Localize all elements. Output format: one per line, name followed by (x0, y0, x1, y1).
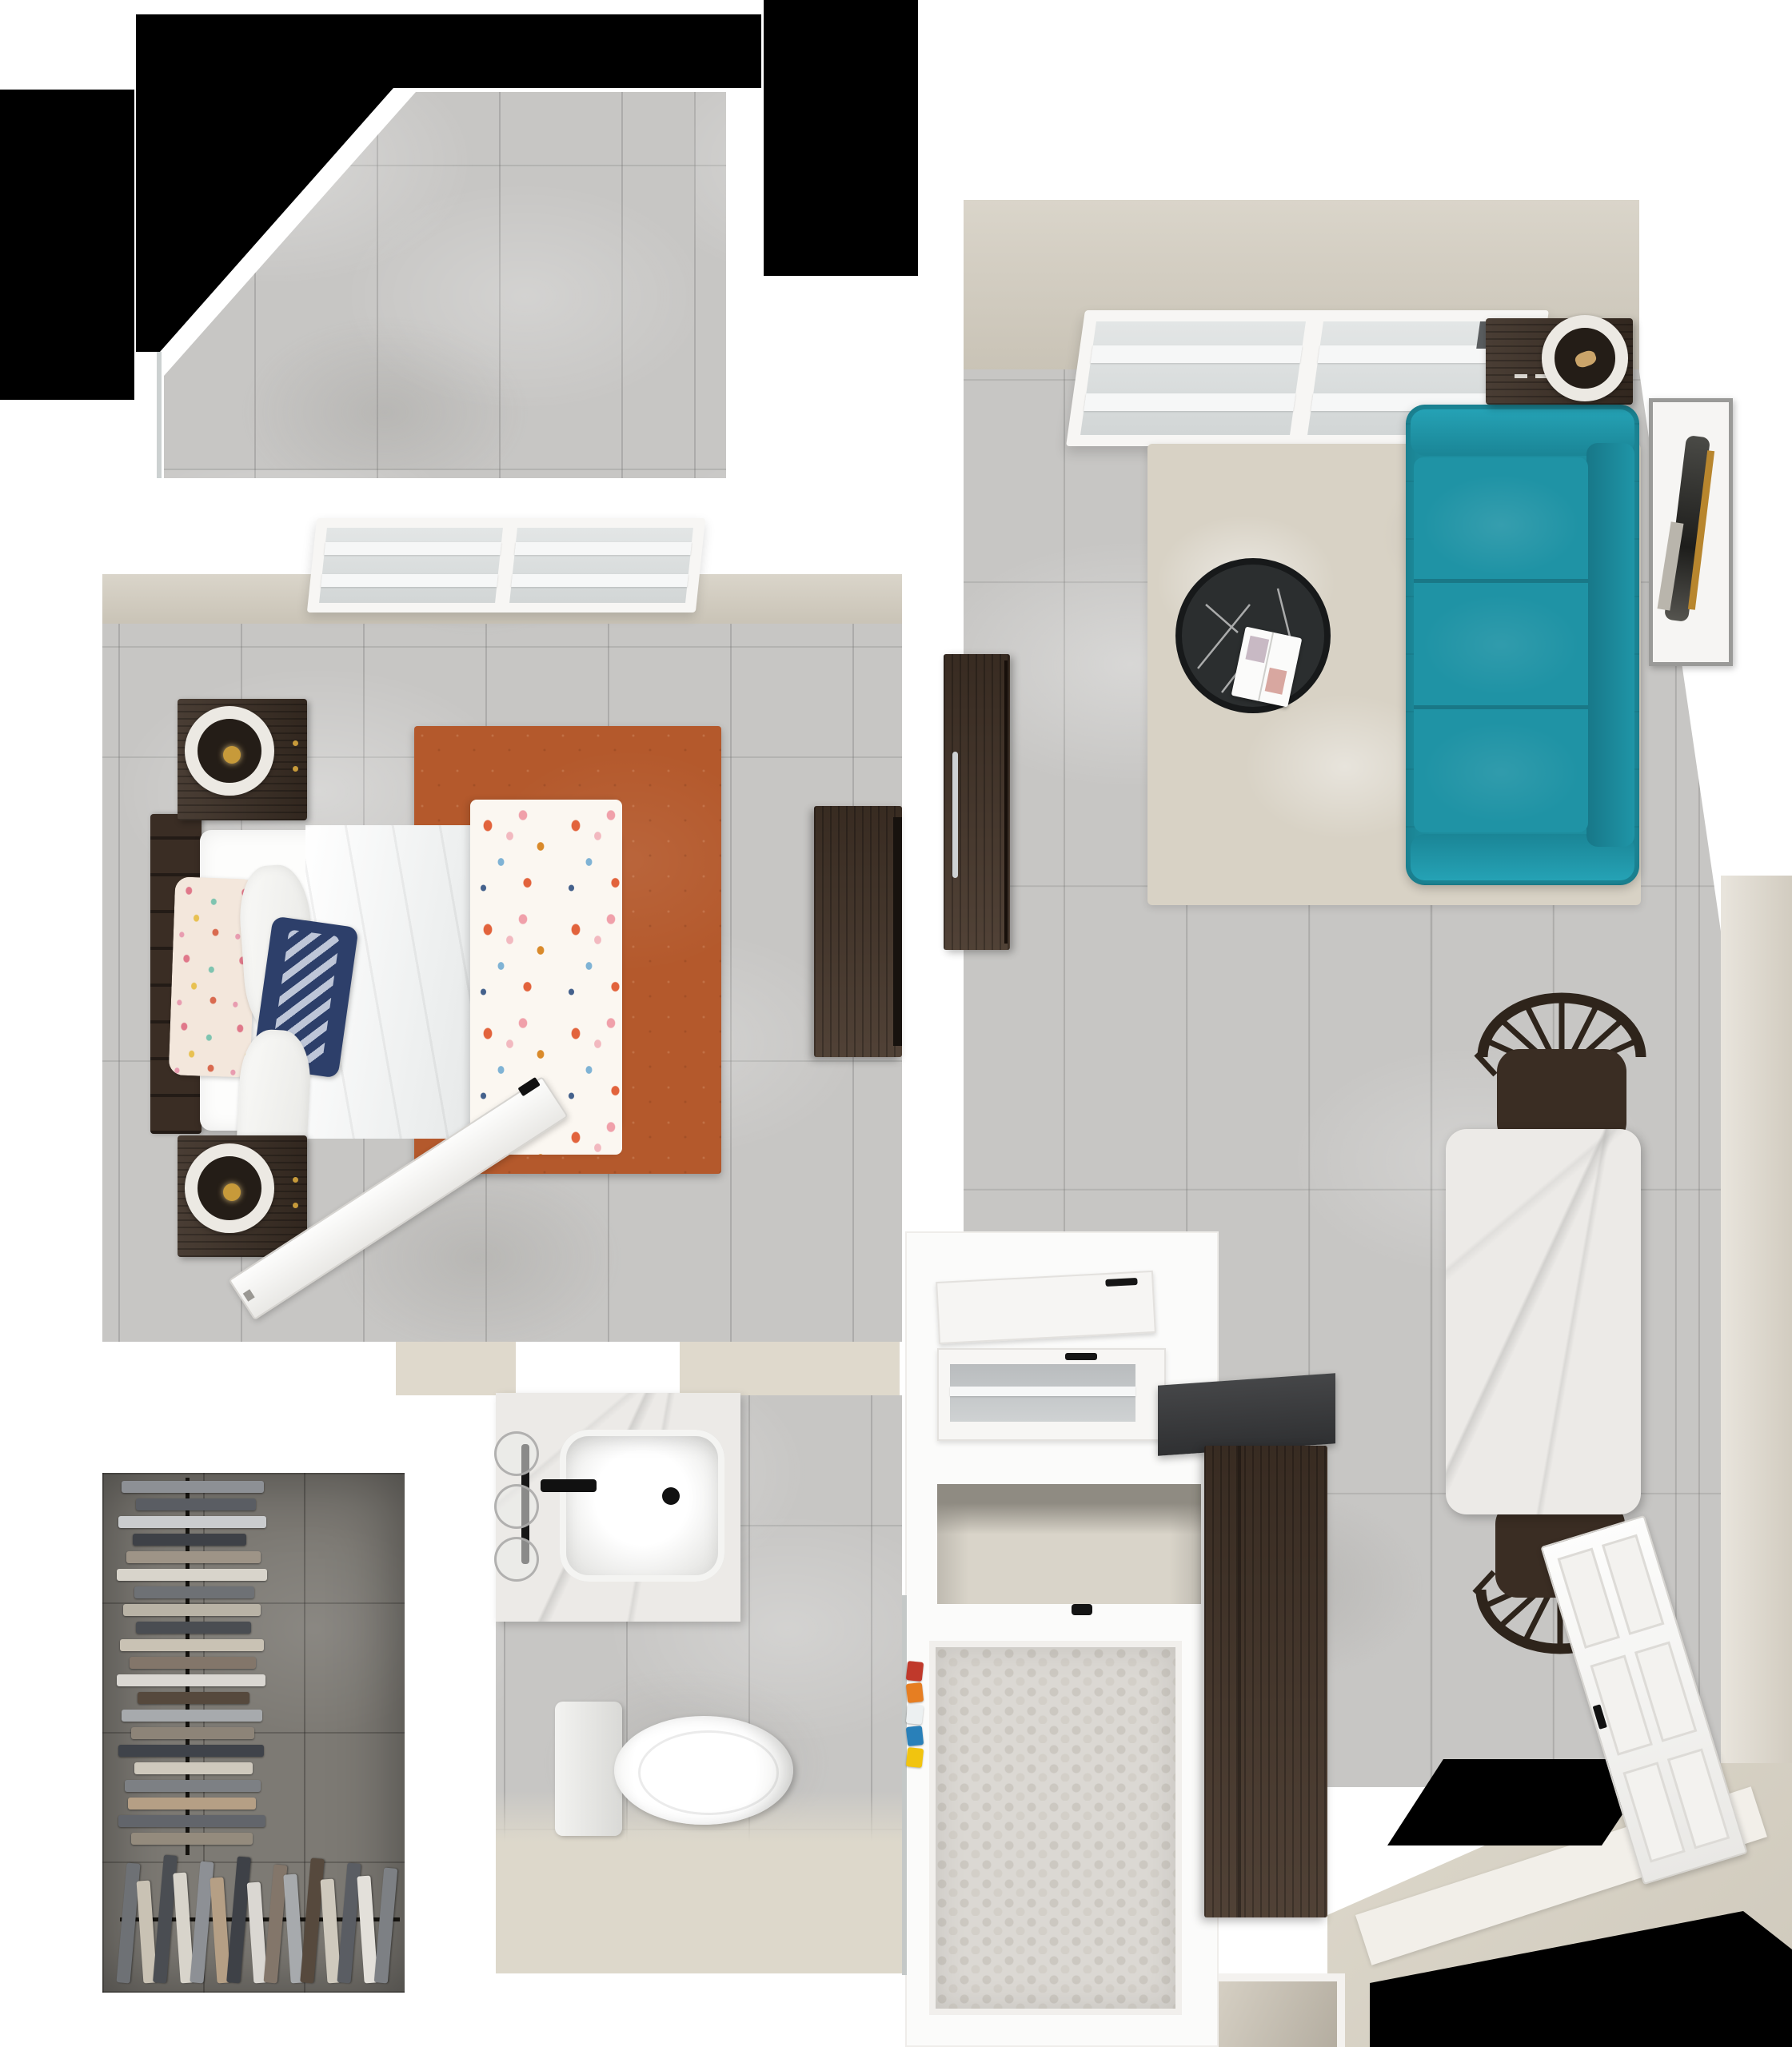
clothes-item (122, 1481, 264, 1493)
bedroom-dresser-edge (893, 817, 902, 1046)
sink-drain (662, 1487, 680, 1505)
clothes-item (117, 1569, 267, 1581)
counter-open-shelf (937, 1484, 1201, 1604)
bedroom-dresser (814, 806, 902, 1057)
toiletry-bottle (906, 1661, 924, 1682)
drawer-knob (293, 740, 298, 746)
doorway-gap-bathroom (396, 1342, 516, 1395)
doorway-gap-living (680, 1342, 900, 1395)
toiletry-bottle (906, 1682, 924, 1703)
sofa-seam (1414, 705, 1588, 709)
skylight-pane-left (319, 528, 503, 603)
clothes-item (125, 1780, 261, 1792)
skylight-pane-right (509, 528, 693, 603)
clothes-item (374, 1868, 397, 1984)
sofa-backrest (1586, 443, 1634, 847)
shower-glass-line (902, 1595, 907, 1975)
lid-handle (1105, 1278, 1137, 1287)
door-hinge (243, 1289, 255, 1302)
clothes-item (133, 1534, 246, 1546)
void-between-units (764, 0, 918, 276)
patio-glass-rail (157, 352, 162, 478)
table-lamp-bottom (185, 1143, 274, 1233)
closet-rack-bottom-items (122, 1853, 401, 1983)
void-left-strip (0, 90, 134, 400)
counter-knob (1072, 1604, 1092, 1615)
toilet-tank (555, 1702, 622, 1836)
abstract-wall-art (1649, 398, 1733, 666)
clothes-item (138, 1692, 249, 1704)
glass-jar (494, 1484, 539, 1529)
drawer-knob (293, 766, 298, 772)
glass-jar (494, 1537, 539, 1582)
closet-rack-vertical-items (112, 1481, 272, 1855)
table-lamp-top (185, 706, 274, 796)
teal-sofa (1406, 405, 1639, 885)
bedroom-skylight (307, 518, 705, 613)
vanity-sink (560, 1430, 724, 1582)
floor-plan-stage (0, 0, 1792, 2047)
lamp-inner-object (1574, 349, 1598, 369)
magazine-page-art (1265, 668, 1287, 695)
clothes-item (130, 1657, 256, 1669)
clothes-item (120, 1639, 264, 1651)
dining-chair-top (1471, 980, 1652, 1145)
clothes-item (300, 1858, 325, 1984)
cabinet-handle (952, 752, 958, 878)
lamp-bulb-gold (223, 746, 241, 764)
clothes-item (136, 1622, 251, 1634)
drawer-knob (293, 1177, 298, 1183)
pantry-counter-top (1158, 1373, 1335, 1456)
sofa-seam (1414, 579, 1588, 583)
clothes-item (118, 1815, 265, 1827)
shower-floor (929, 1641, 1182, 2015)
clothes-item (118, 1516, 266, 1528)
clothes-item (117, 1674, 265, 1686)
toiletry-bottle (906, 1747, 924, 1768)
dining-table (1446, 1129, 1641, 1514)
sofa-seat (1414, 457, 1588, 832)
toilet-seat-line (638, 1730, 779, 1815)
clothes-item (131, 1727, 254, 1739)
living-tall-cabinet (944, 654, 1010, 950)
counter-lid-upper (936, 1271, 1156, 1344)
entry-wall-niche (1209, 1973, 1345, 2047)
drawer-handle (1515, 374, 1527, 378)
clothes-item (131, 1833, 253, 1845)
clothes-item (134, 1586, 254, 1598)
toiletry-bottle (906, 1704, 924, 1725)
clothes-item (136, 1498, 256, 1510)
clothes-item (126, 1551, 261, 1563)
lid-glass-panel (950, 1364, 1135, 1422)
clothes-item (134, 1762, 253, 1774)
toilet-bowl (614, 1716, 793, 1825)
glass-jar (494, 1431, 539, 1476)
window-pane-left (1080, 321, 1306, 435)
counter-lid-lower (937, 1348, 1166, 1441)
clothes-item (226, 1857, 251, 1984)
lamp-bulb-gold (223, 1183, 241, 1201)
clothes-item (122, 1710, 262, 1722)
pantry-seam (1238, 1446, 1241, 1917)
living-lamp (1542, 315, 1628, 401)
clothes-item (118, 1745, 264, 1757)
clothes-item (123, 1604, 261, 1616)
pantry-cabinet (1204, 1446, 1327, 1917)
shower-products (907, 1662, 928, 1774)
toiletry-bottle (906, 1726, 924, 1746)
drawer-knob (293, 1203, 298, 1208)
lid-handle (1065, 1353, 1097, 1360)
clothes-item (128, 1798, 256, 1810)
sink-faucet (541, 1479, 597, 1492)
magazine-page-art (1245, 636, 1269, 663)
cabinet-seam (1004, 660, 1008, 944)
